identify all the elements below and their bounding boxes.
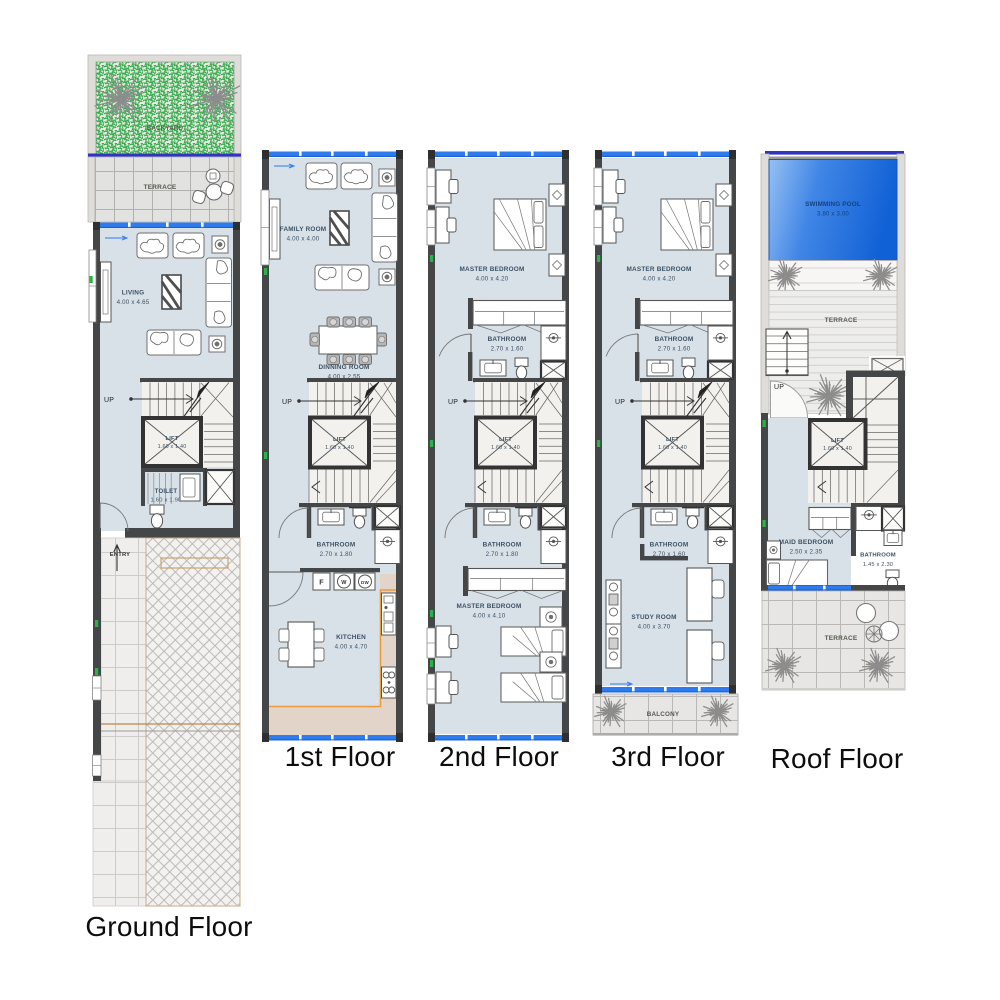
svg-text:KITCHEN: KITCHEN xyxy=(336,634,366,641)
svg-text:2nd Floor: 2nd Floor xyxy=(439,741,559,772)
svg-text:2.70 x 1.80: 2.70 x 1.80 xyxy=(320,551,353,558)
svg-text:DINNING ROOM: DINNING ROOM xyxy=(318,364,369,371)
svg-text:Ground Floor: Ground Floor xyxy=(85,911,252,942)
svg-text:DW: DW xyxy=(361,580,369,585)
svg-text:LIFT: LIFT xyxy=(165,436,178,442)
svg-text:Roof Floor: Roof Floor xyxy=(771,743,904,774)
svg-text:4.00 x 4.10: 4.00 x 4.10 xyxy=(473,613,506,620)
svg-text:STUDY ROOM: STUDY ROOM xyxy=(631,614,676,621)
svg-text:UP: UP xyxy=(774,384,784,391)
svg-text:LIFT: LIFT xyxy=(499,437,512,443)
svg-text:1.60 x 1.40: 1.60 x 1.40 xyxy=(823,446,852,452)
svg-text:1.45 x 2.30: 1.45 x 2.30 xyxy=(863,562,893,568)
svg-text:BATHROOM: BATHROOM xyxy=(317,542,356,549)
svg-text:TERRACE: TERRACE xyxy=(144,184,177,191)
svg-text:4.00 x 4.00: 4.00 x 4.00 xyxy=(287,236,320,243)
svg-text:1.60 x 1.90: 1.60 x 1.90 xyxy=(151,498,182,504)
svg-text:1.60 x 1.40: 1.60 x 1.40 xyxy=(491,445,520,451)
svg-text:4.00 x 4.20: 4.00 x 4.20 xyxy=(476,276,509,283)
svg-text:LIFT: LIFT xyxy=(831,438,844,444)
svg-text:TOILET: TOILET xyxy=(155,489,178,495)
svg-text:UP: UP xyxy=(282,399,292,406)
svg-text:UP: UP xyxy=(448,399,458,406)
svg-text:1.60 x 1.40: 1.60 x 1.40 xyxy=(325,445,354,451)
svg-text:UP: UP xyxy=(615,399,625,406)
svg-text:BATHROOM: BATHROOM xyxy=(488,336,527,343)
svg-text:2.70 x 1.80: 2.70 x 1.80 xyxy=(486,551,519,558)
svg-text:ENTRY: ENTRY xyxy=(110,552,130,558)
svg-text:BALCONY: BALCONY xyxy=(647,711,680,718)
svg-text:LIVING: LIVING xyxy=(122,290,145,297)
svg-text:LIFT: LIFT xyxy=(666,437,679,443)
svg-text:LIFT: LIFT xyxy=(333,437,346,443)
svg-text:BATHROOM: BATHROOM xyxy=(655,336,694,343)
svg-text:MASTER BEDROOM: MASTER BEDROOM xyxy=(460,266,525,273)
svg-text:UP: UP xyxy=(104,397,114,404)
svg-text:BATHROOM: BATHROOM xyxy=(860,553,896,559)
svg-text:4.00 x 4.65: 4.00 x 4.65 xyxy=(117,299,150,306)
svg-text:FAMILY ROOM: FAMILY ROOM xyxy=(280,226,327,233)
svg-text:TERRACE: TERRACE xyxy=(825,635,858,642)
svg-text:2.70 x 1.60: 2.70 x 1.60 xyxy=(658,346,691,353)
svg-text:MASTER BEDROOM: MASTER BEDROOM xyxy=(627,266,692,273)
svg-text:2.70 x 1.60: 2.70 x 1.60 xyxy=(491,346,524,353)
svg-text:4.00 x 3.70: 4.00 x 3.70 xyxy=(638,624,671,631)
svg-text:SWIMMING POOL: SWIMMING POOL xyxy=(805,201,861,208)
svg-text:TERRACE: TERRACE xyxy=(825,317,858,324)
svg-text:BACKYARD: BACKYARD xyxy=(147,125,184,132)
svg-text:2.50 x 2.35: 2.50 x 2.35 xyxy=(790,549,823,556)
svg-text:1st Floor: 1st Floor xyxy=(285,741,396,772)
svg-text:BATHROOM: BATHROOM xyxy=(483,542,522,549)
svg-text:F: F xyxy=(319,580,324,587)
svg-text:3rd Floor: 3rd Floor xyxy=(611,741,725,772)
svg-text:MASTER BEDROOM: MASTER BEDROOM xyxy=(457,603,522,610)
svg-text:1.60 x 1.40: 1.60 x 1.40 xyxy=(658,445,687,451)
svg-text:4.00 x 4.20: 4.00 x 4.20 xyxy=(643,276,676,283)
svg-text:BATHROOM: BATHROOM xyxy=(650,542,689,549)
svg-text:MAID BEDROOM: MAID BEDROOM xyxy=(779,539,834,546)
svg-text:3.80 x 3.00: 3.80 x 3.00 xyxy=(817,212,849,218)
svg-text:W: W xyxy=(341,580,347,586)
svg-text:4.00 x 4.70: 4.00 x 4.70 xyxy=(335,644,368,651)
svg-text:1.60 x 1.40: 1.60 x 1.40 xyxy=(158,444,187,450)
